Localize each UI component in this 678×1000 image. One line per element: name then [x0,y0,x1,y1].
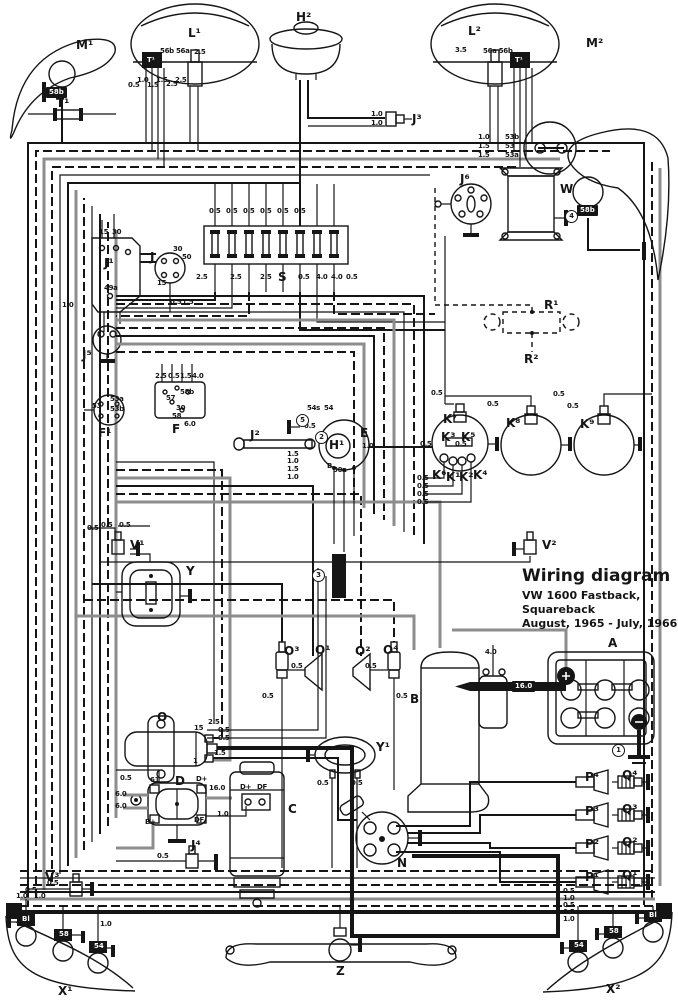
component-label-R¹-12: R¹ [544,298,559,312]
wire-label-2.5-80: 2.5 [208,718,220,726]
wire-label-0.5-69: 0.5 [487,400,499,408]
wire-label-D+-87: D+ [196,775,207,783]
wire-label-1-85: 1 [193,757,198,765]
component-label-W-7: W [560,182,573,196]
component-label-O¹-34: O¹ [315,643,330,657]
wire-label-0.5-73: 0.5 [101,521,113,529]
wire-label-0.5-66: 0.5 [417,490,429,498]
wire-label-50a-56: 50a [333,466,347,474]
component-label-Q²-50: Q² [622,835,637,849]
component-label-Y¹-32: Y¹ [376,740,390,754]
component-label-K⁷-20: K⁷ [443,412,458,426]
component-label-K⁴-26: K⁴ [473,468,488,482]
wire-label-1.0-61: 1.0 [287,473,299,481]
wire-label-53-15: 53 [505,142,514,150]
component-label-K⁹-28: K⁹ [580,417,595,431]
component-label-J⁵-14: J⁵ [82,348,92,362]
socket-label-Bl-4: Bl [19,914,33,925]
wire-label-50-22: 50 [182,253,191,261]
wire-label-15-23: 15 [157,279,166,287]
component-label-A-37: A [608,636,617,650]
wire-label-0.5-33: 0.5 [298,273,310,281]
wire-label-53b-13: 53b [505,133,519,141]
wire-label-2.5-32: 2.5 [260,273,272,281]
wire-label-0.5-26: 0.5 [243,207,255,215]
wire-label-6.0-92: 6.0 [115,802,127,810]
wire-label-0.5-63: 0.5 [455,440,467,448]
wire-label-53-50: 53 [92,402,101,410]
component-label-Z-55: Z [336,964,345,978]
component-label-L¹-1: L¹ [188,26,201,40]
wire-label-54s-52: 54s [307,404,320,412]
component-label-E-18: E [360,426,368,440]
component-label-M²-4: M² [586,36,603,50]
wire-label-0.5-74: 0.5 [119,521,131,529]
wire-label-0.5-70: 0.5 [553,390,565,398]
wire-label-16.0-93: 16.0 [209,784,225,792]
title-block: Wiring diagram VW 1600 Fastback, Squareb… [522,566,678,631]
wire-label-30-21: 30 [173,245,182,253]
component-label-F¹-15: F¹ [98,426,111,440]
component-label-K⁶-23: K⁶ [432,468,447,482]
socket-label-58b-3: 58b [577,205,598,216]
wire-label-0.5-68: 0.5 [431,389,443,397]
wire-label-15-18: 15 [99,228,108,236]
component-label-K³-21: K³ [441,430,456,444]
wire-label-0.5-76: 0.5 [365,662,377,670]
wire-label-1.5-42: 1.5 [180,372,192,380]
wire-label-1.0-10: 1.0 [371,110,383,118]
diagram-subtitle-dates: August, 1965 - July, 1966 [522,617,678,631]
component-label-P¹-51: P¹ [585,870,599,884]
component-label-X²-54: X² [606,982,621,996]
wire-label-56b_56a-0: 56b 56a [160,47,190,55]
component-label-Q³-48: Q³ [622,802,637,816]
socket-label-58-8: 58 [606,926,622,937]
wire-label-B-55: B [327,462,332,470]
wire-label-30-46: 30 [176,404,185,412]
component-label-K²-25: K² [459,470,474,484]
wire-label-54-53: 54 [324,404,333,412]
wire-label-1.0-104: 1.0 [100,920,112,928]
component-label-P⁴-45: P⁴ [585,770,599,784]
wire-label-0.5-81: 0.5 [218,726,230,734]
socket-label-T¹-0: T¹ [144,55,158,66]
wire-label-0.5-71: 0.5 [567,402,579,410]
wire-label-4.0-34: 4.0 [316,273,328,281]
socket-label-T¹-1: T¹ [512,55,526,66]
wire-label-1.0-57: 1.0 [362,442,374,450]
wire-label-D+-95: D+ [240,783,251,791]
wire-label-1.5-83: 1.5 [214,749,226,757]
component-label-J-10: J [150,250,154,264]
component-label-O-39: O [157,710,167,724]
wire-label-0.5-64: 0.5 [417,474,429,482]
wire-label-6.0-48: 6.0 [184,420,196,428]
component-label-P³-47: P³ [585,804,599,818]
component-label-Q⁴-46: Q⁴ [622,768,637,782]
wire-label-B+-88: B+ [145,818,156,826]
wire-label-0.5-41: 0.5 [168,372,180,380]
component-label-O⁴-36: O⁴ [383,643,398,657]
wire-label-1.5-60: 1.5 [287,465,299,473]
component-label-J⁶-8: J⁶ [460,172,470,186]
component-label-V¹-29: V¹ [130,538,145,552]
socket-label-Bl-9: Bl [646,910,660,921]
component-label-O²-35: O² [355,644,370,658]
wire-label-61-86: 61 [150,776,159,784]
component-label-N-42: N [397,856,407,870]
wire-label-1.0-11: 1.0 [371,119,383,127]
wire-label-0.5-24: 0.5 [209,207,221,215]
wire-label-0.5-29: 0.5 [294,207,306,215]
component-label-F-16: F [172,422,180,436]
socket-label-54-7: 54 [571,940,587,951]
component-label-T¹-5: T¹ [56,96,69,110]
ground-point-5-4: 5 [296,414,309,427]
ground-point-4-3: 4 [565,210,578,223]
component-label-L²-3: L² [468,24,481,38]
wire-label-0.5-65: 0.5 [417,482,429,490]
wire-label-58b-45: 58b [180,388,194,396]
wire-label-53b-51: 53b [110,405,124,413]
component-label-J¹-9: J¹ [104,256,114,270]
component-label-B-38: B [410,692,419,706]
wire-label-1.5-14: 1.5 [478,142,490,150]
component-label-X¹-53: X¹ [58,984,73,998]
wire-label-0.5-25: 0.5 [226,207,238,215]
wire-label-3.5-2: 3.5 [455,46,467,54]
component-label-R²-13: R² [524,352,539,366]
wire-label-0.5-97: 0.5 [157,852,169,860]
wire-label-1.0-59: 1.0 [287,457,299,465]
wire-label-1.5-39: 1.5 [182,298,194,306]
component-label-V²-30: V² [542,538,557,552]
wire-label-1.0-94: 1.0 [217,810,229,818]
ground-point-2-1: 2 [315,431,328,444]
wire-label-1.0-12: 1.0 [478,133,490,141]
component-label-J⁴-43: J⁴ [191,838,201,852]
wire-label-2.5-40: 2.5 [155,372,167,380]
component-label-M¹-0: M¹ [76,38,93,52]
ground-point-3-2: 3 [312,569,325,582]
wire-label-0.5-98: 0.5 [317,779,329,787]
wire-label-0.5-62: 0.5 [420,440,432,448]
component-label-Q¹-52: Q¹ [622,868,637,882]
wire-label-4.0-79: 4.0 [485,648,497,656]
wiring-diagram-page: M¹L¹H²L²M²T¹J³WJ⁶J¹JSR¹R²J⁵F¹FJ²EH¹K⁷K³K… [0,0,678,1000]
wire-label-DF-89: DF [194,816,204,824]
wire-label-DF-96: DF [257,783,267,791]
wire-label-4.0-35: 4.0 [331,273,343,281]
wire-label-56a_56b-3: 56a 56b [483,47,513,55]
component-label-O³-33: O³ [284,644,299,658]
wire-label-57-44: 57 [166,394,175,402]
wire-label-2.5-30: 2.5 [196,273,208,281]
diagram-title: Wiring diagram [522,566,678,586]
wire-label-49a-20: 49a [104,284,118,292]
wire-label-0.5-78: 0.5 [396,692,408,700]
wire-label-53a-49: 53a [110,395,124,403]
wire-label-30-19: 30 [112,228,121,236]
component-label-J³-6: J³ [412,112,422,126]
wire-label-0.5-77: 0.5 [262,692,274,700]
wire-label-0.5-75: 0.5 [291,662,303,670]
component-label-Y-31: Y [186,564,195,578]
wire-label-0.5-90: 0.5 [120,774,132,782]
wire-label-6.0-91: 6.0 [115,790,127,798]
wire-label-0.5-99: 0.5 [351,779,363,787]
socket-label-58-5: 58 [56,929,72,940]
component-label-J²-17: J² [250,428,260,442]
component-label-C-41: C [288,802,297,816]
wire-label-2.5-1: 2.5 [194,48,206,56]
wire-label-53a-17: 53a [505,151,519,159]
wire-label-0.5-36: 0.5 [346,273,358,281]
wire-label-0.5-72: 0.5 [87,524,99,532]
wire-label-15-84: 15 [194,724,203,732]
wire-label-0.5-67: 0.5 [417,498,429,506]
wire-label-0.5-100: 0.5 [47,879,59,887]
wire-label-1.0-103: 1.0 [34,892,46,900]
wire-label-1.0-37: 1.0 [62,301,74,309]
labels-layer: M¹L¹H²L²M²T¹J³WJ⁶J¹JSR¹R²J⁵F¹FJ²EH¹K⁷K³K… [0,0,678,1000]
component-label-H¹-19: H¹ [329,438,344,452]
wire-label-2.5-31: 2.5 [230,273,242,281]
ground-point-1-0: 1 [612,744,625,757]
component-label-D-40: D [175,774,185,788]
wire-label-2.5-9: 2.5 [175,76,187,84]
socket-label-58b-2: 58b [46,87,67,98]
component-label-K⁸-27: K⁸ [506,416,521,430]
socket-label-16.0-10: 16.0 [512,681,535,692]
wire-label-4.0-43: 4.0 [192,372,204,380]
wire-label-0.5-38: 0.5 [170,298,182,306]
wire-label-58-47: 58 [172,412,181,420]
wire-label-0.5-28: 0.5 [277,207,289,215]
component-label-S-11: S [278,270,287,284]
wire-label-0.5-82: 0.5 [218,734,230,742]
wire-label-1.5-16: 1.5 [478,151,490,159]
component-label-H²-2: H² [296,10,311,24]
component-label-P²-49: P² [585,837,599,851]
wire-label-0.5-27: 0.5 [260,207,272,215]
wire-label-1.0-109: 1.0 [563,915,575,923]
diagram-subtitle-model: VW 1600 Fastback, Squareback [522,589,678,617]
socket-label-54-6: 54 [91,941,107,952]
